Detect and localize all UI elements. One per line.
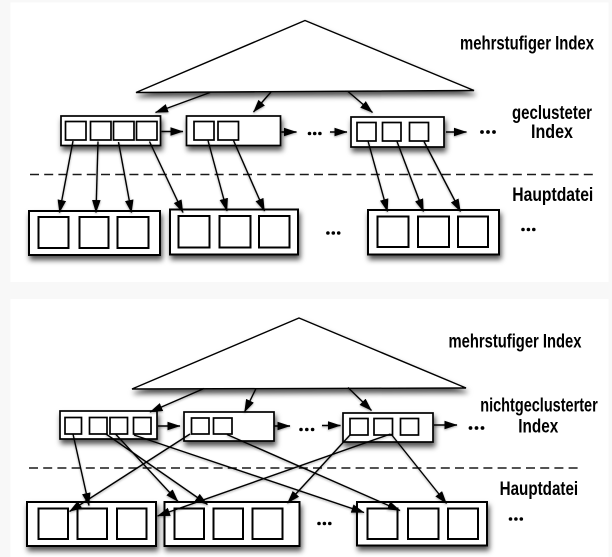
svg-text:Index: Index (518, 417, 558, 438)
svg-text:Hauptdatei: Hauptdatei (512, 185, 593, 206)
svg-text:Hauptdatei: Hauptdatei (500, 479, 579, 500)
svg-text:mehrstufiger Index: mehrstufiger Index (449, 332, 582, 353)
svg-text:mehrstufiger Index: mehrstufiger Index (460, 34, 594, 55)
svg-text:Index: Index (531, 122, 573, 143)
svg-text:nichtgeclusterter: nichtgeclusterter (480, 396, 598, 417)
svg-text:geclusteter: geclusteter (512, 103, 592, 124)
